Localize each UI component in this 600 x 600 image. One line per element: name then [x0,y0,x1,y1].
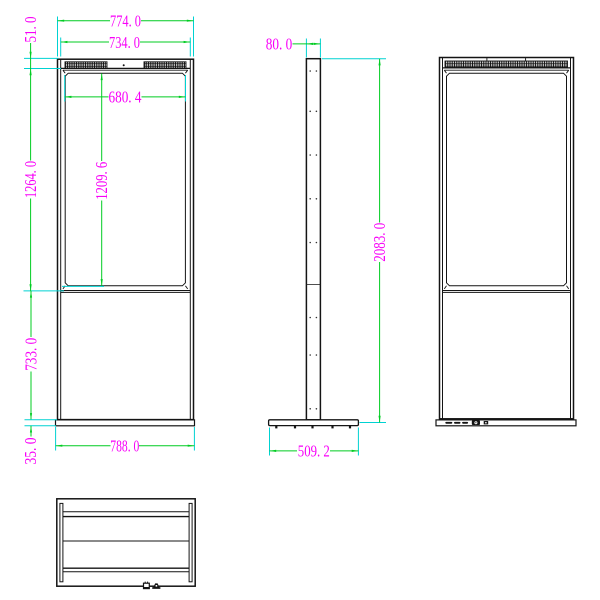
svg-text:774. 0: 774. 0 [110,12,141,31]
svg-text:35. 0: 35. 0 [21,438,40,465]
svg-text:2083. 0: 2083. 0 [370,223,389,262]
svg-text:1264. 0: 1264. 0 [21,161,40,198]
svg-text:80. 0: 80. 0 [266,35,293,54]
svg-text:1209. 6: 1209. 6 [92,162,111,200]
svg-text:509. 2: 509. 2 [298,442,330,461]
svg-text:733. 0: 733. 0 [22,338,41,371]
svg-text:788. 0: 788. 0 [110,437,139,456]
svg-text:680. 4: 680. 4 [109,88,142,107]
svg-text:51. 0: 51. 0 [21,16,40,42]
svg-text:734. 0: 734. 0 [109,33,140,52]
